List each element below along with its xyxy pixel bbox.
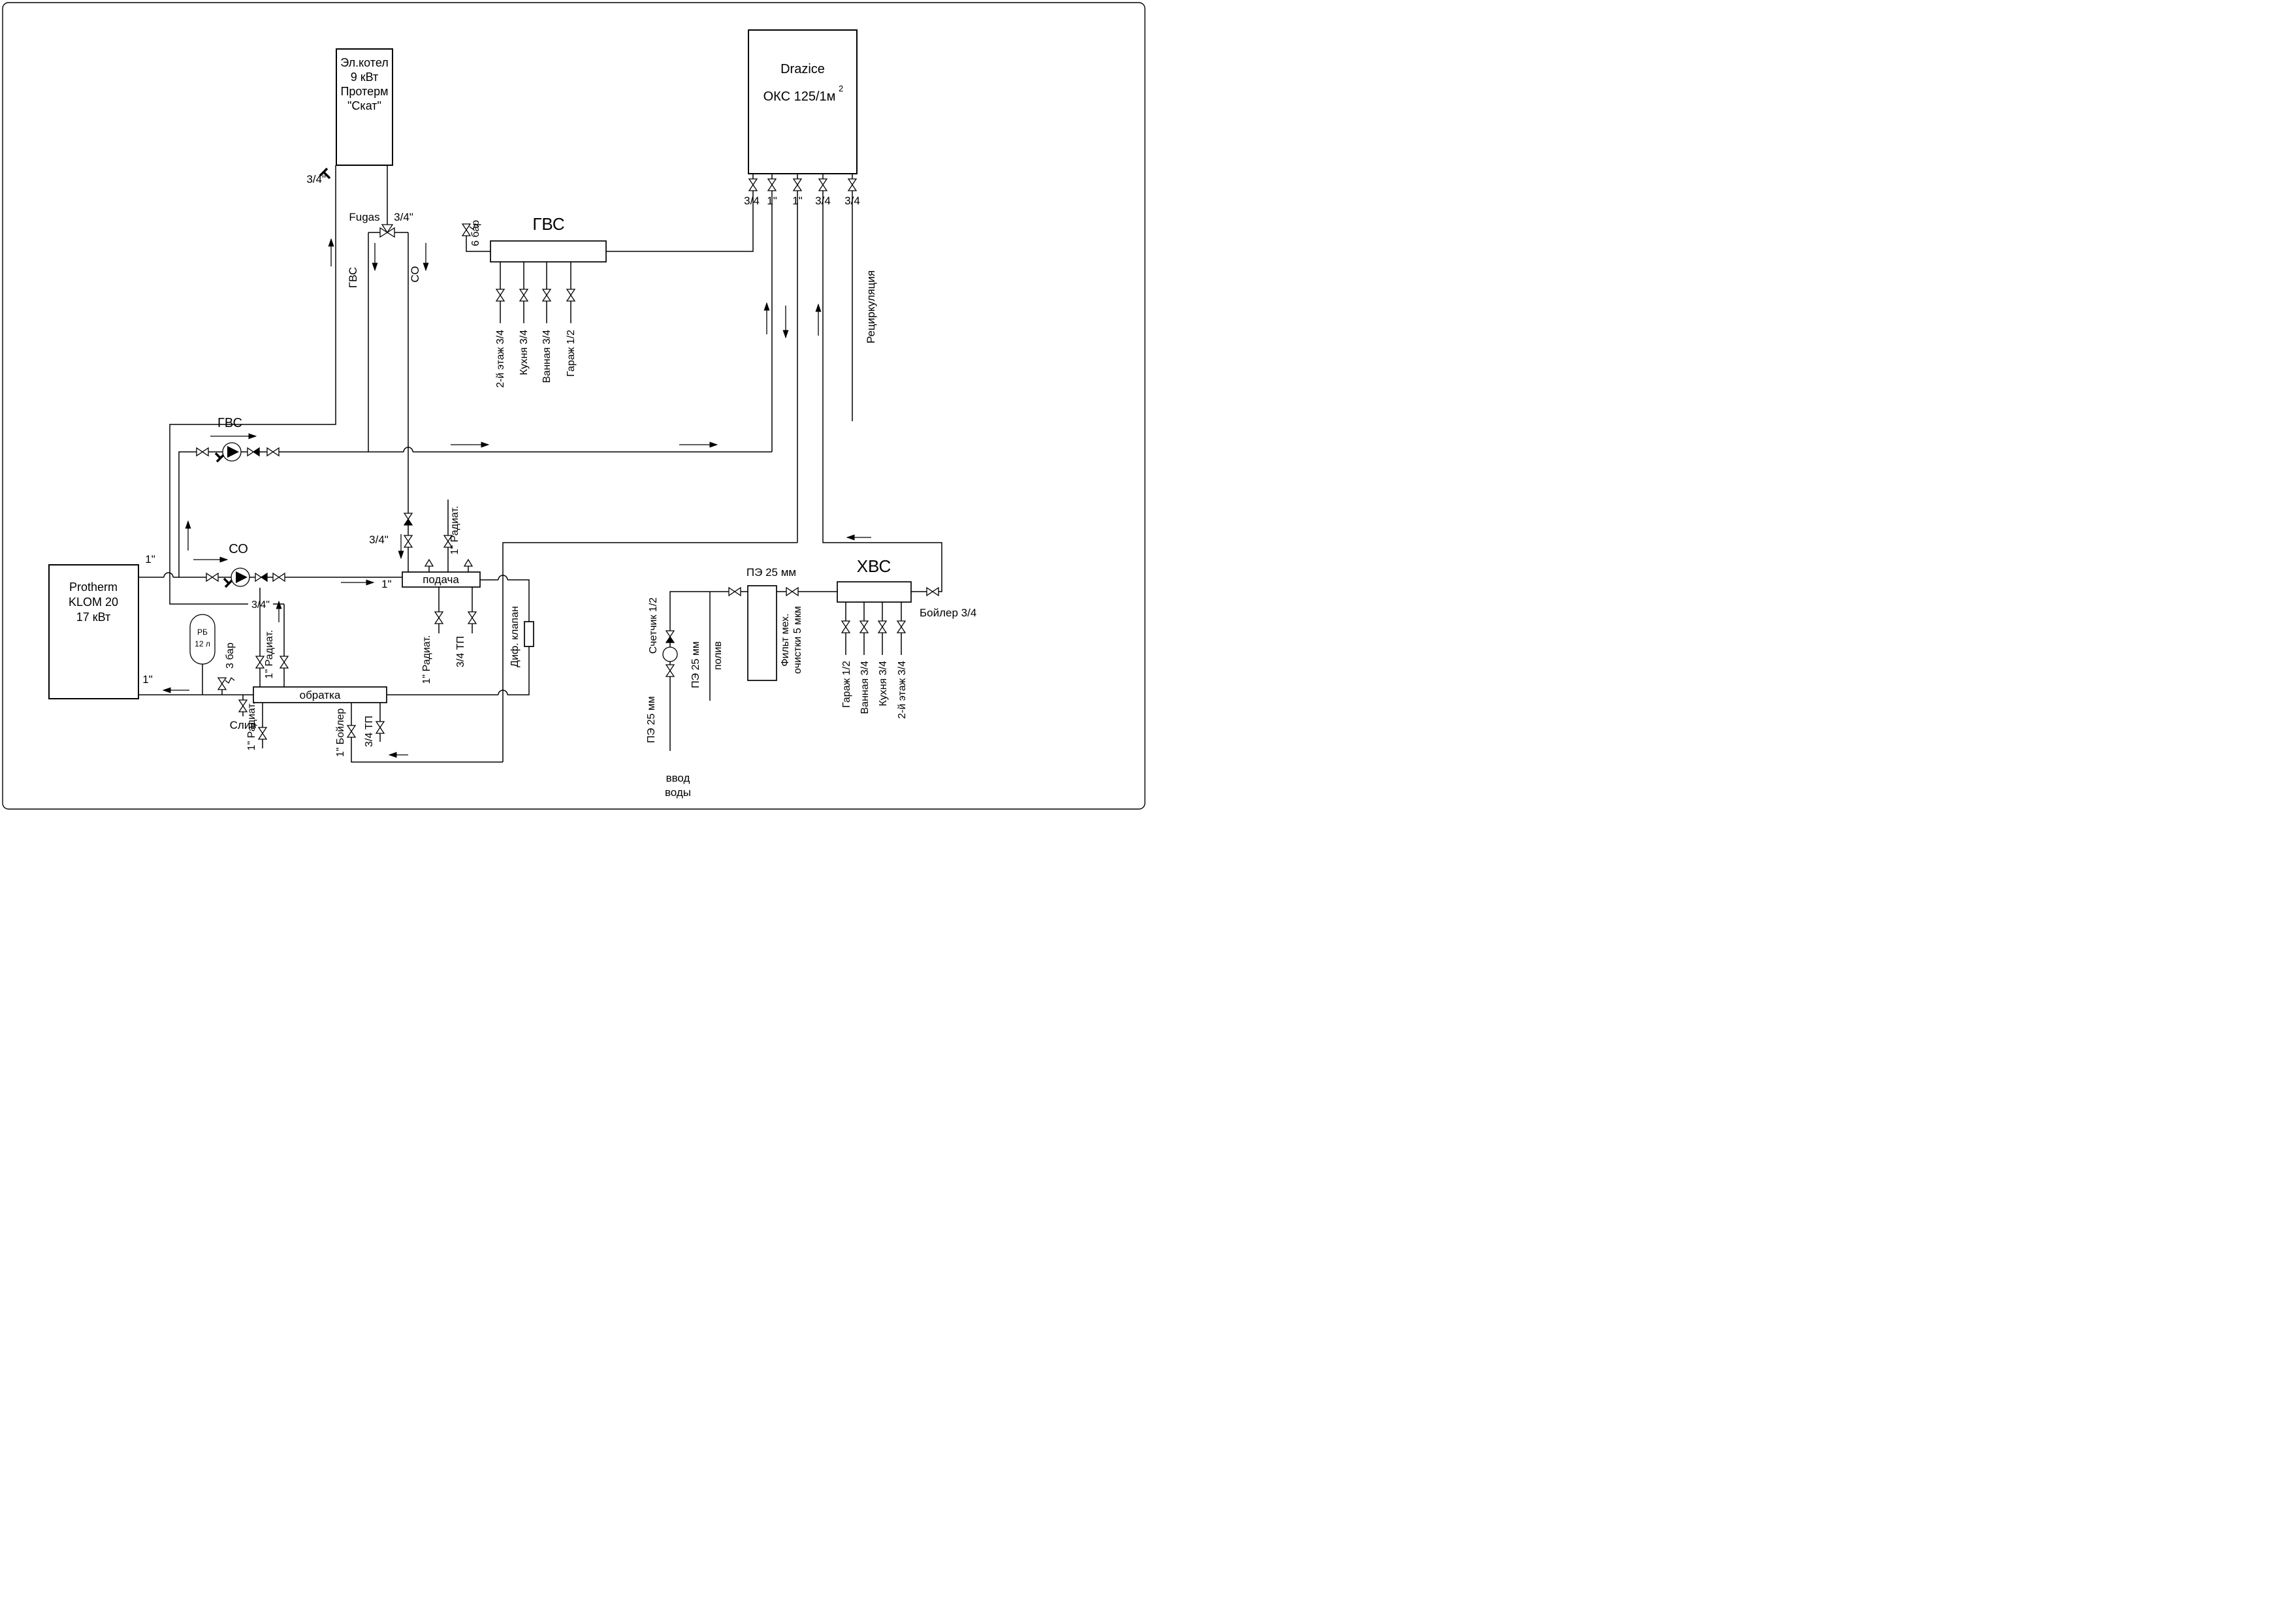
obratka-outlet-label: 1" Радиат. <box>246 702 257 751</box>
drazice-model: ОКС 125/1м <box>763 89 836 104</box>
hvs-outlet-label: Кухня 3/4 <box>878 661 889 707</box>
return-manifold-label: обратка <box>300 689 341 701</box>
electric-boiler-power: 9 кВт <box>351 71 379 84</box>
poliv-label: полив <box>713 641 724 670</box>
fugas-size-label: 3/4" <box>394 211 413 223</box>
return-manifold: обратка <box>253 687 387 703</box>
co-riser-size-label: 3/4" <box>369 533 389 546</box>
elec-return-size-label: 3/4" <box>251 599 270 611</box>
filter-label-line2: очистки 5 мкм <box>792 606 803 674</box>
water-meter-icon <box>663 647 677 661</box>
drazice-port-size: 3/4 <box>744 195 760 207</box>
gvs-manifold-title: ГВС <box>532 214 564 234</box>
pe25-poliv-label: ПЭ 25 мм <box>690 641 701 688</box>
bar3-label: 3 бар <box>225 643 236 669</box>
boiler34-label: Бойлер 3/4 <box>920 607 976 619</box>
gvs-outlet-label: 2-й этаж 3/4 <box>495 330 506 388</box>
podacha-outlet-label: 1" Радиат. <box>421 635 432 684</box>
podacha-outlet-label: 3/4 ТП <box>455 636 466 667</box>
mechanical-filter <box>748 586 777 680</box>
pe25-filter-label: ПЭ 25 мм <box>746 566 796 579</box>
gvs-pump-label: ГВС <box>217 416 242 430</box>
dif-valve-label: Диф. клапан <box>509 606 521 667</box>
supply-size-label: 1" <box>145 553 155 565</box>
pe25-inlet-label: ПЭ 25 мм <box>646 696 657 743</box>
klom-brand: Protherm <box>69 581 118 594</box>
klom-power: 17 кВт <box>76 611 111 624</box>
gvs-branch-label: ГВС <box>347 267 359 288</box>
water-inlet-label-line2: воды <box>665 786 691 799</box>
electric-boiler-label: Эл.котел <box>340 56 389 69</box>
hvs-outlet-label: Ванная 3/4 <box>859 661 871 714</box>
page-border <box>3 3 1145 809</box>
elbow-size-label: 3/4" <box>306 173 326 185</box>
meter-label: Счетчик 1/2 <box>648 597 659 654</box>
supply-manifold: подача <box>402 572 480 587</box>
drazice-model-sup: 2 <box>839 84 843 93</box>
gvs-outlet-label: Ванная 3/4 <box>541 330 553 383</box>
expansion-tank-volume: 12 л <box>195 639 210 648</box>
gvs-outlet-label: Гараж 1/2 <box>566 330 577 377</box>
expansion-tank: РБ 12 л <box>190 614 215 664</box>
co-pump-label: СО <box>229 542 248 556</box>
drazice-port-size: 3/4 <box>815 195 831 207</box>
electric-boiler-brand: Протерм <box>340 85 388 98</box>
gvs-pump-icon <box>223 443 241 461</box>
hvs-outlet-label: Гараж 1/2 <box>841 661 852 708</box>
recirculation-label: Рециркуляция <box>865 270 877 343</box>
drazice-name: Drazice <box>780 62 825 76</box>
drazice-tank: Drazice ОКС 125/1м 2 <box>748 30 857 174</box>
co-branch-label: СО <box>409 266 421 282</box>
drazice-port-size: 1" <box>767 195 777 207</box>
klom-model: KLOM 20 <box>69 596 118 609</box>
fugas-label: Fugas <box>349 211 379 223</box>
supply-manifold-label: подача <box>423 573 459 586</box>
expansion-tank-label: РБ <box>197 628 208 637</box>
return-size-label: 1" <box>142 673 153 686</box>
obratka-outlet-label: 3/4 ТП <box>364 716 375 747</box>
rad-supply-label: 1" Радиат. <box>449 506 460 555</box>
differential-valve-body <box>524 622 534 646</box>
hvs-manifold-title: ХВС <box>857 556 891 576</box>
electric-boiler: Эл.котел 9 кВт Протерм "Скат" <box>336 49 393 165</box>
drazice-port-size: 3/4 <box>844 195 860 207</box>
gvs-outlet-label: Кухня 3/4 <box>519 330 530 375</box>
schematic-page: Эл.котел 9 кВт Протерм "Скат" Drazice ОК… <box>0 0 1147 812</box>
obratka-top-label: 1" Радиат. <box>264 630 275 679</box>
water-inlet-label-line1: ввод <box>666 772 690 784</box>
supply-size-right-label: 1" <box>381 578 392 590</box>
hvs-outlet-label: 2-й этаж 3/4 <box>897 661 908 719</box>
obratka-outlet-label: 1" Бойлер <box>335 709 346 757</box>
heating-schematic: Эл.котел 9 кВт Протерм "Скат" Drazice ОК… <box>0 0 1147 812</box>
co-pump-icon <box>231 568 249 586</box>
klom-boiler: Protherm KLOM 20 17 кВт <box>49 565 138 699</box>
bar6-label: 6 бар <box>470 220 481 246</box>
filter-label-line1: Фильт мех. <box>780 613 791 666</box>
electric-boiler-model: "Скат" <box>347 99 381 112</box>
drazice-port-size: 1" <box>792 195 803 207</box>
